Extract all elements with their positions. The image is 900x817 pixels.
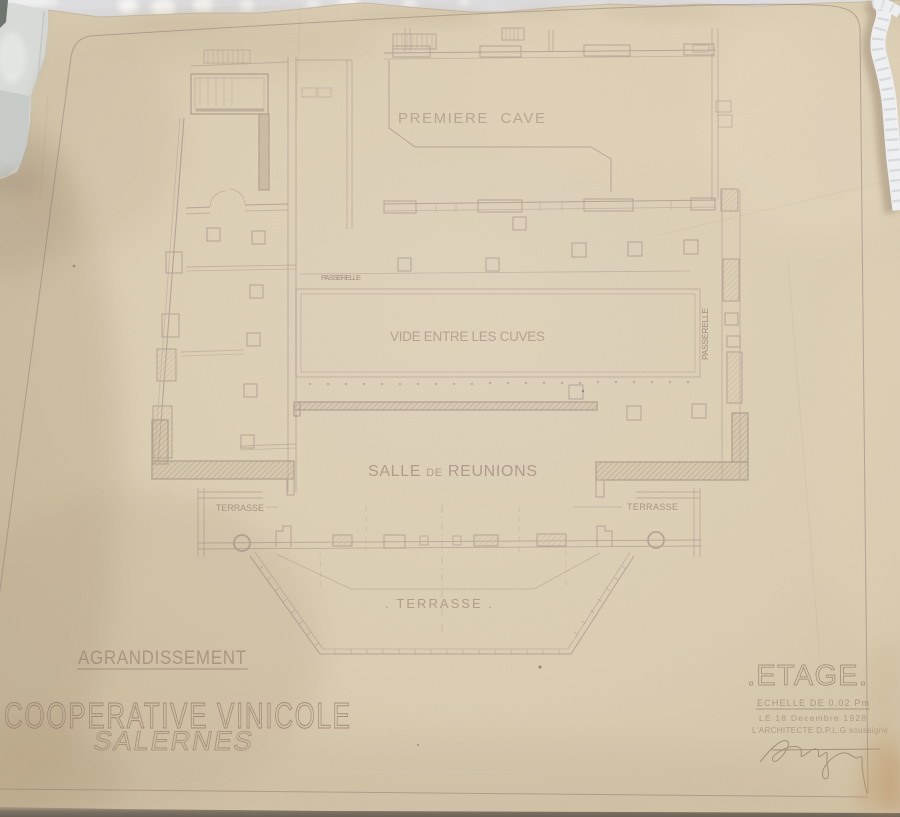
svg-text:VIDE ENTRE LES CUVES: VIDE ENTRE LES CUVES [390, 329, 545, 344]
svg-text:ECHELLE DE 0.02 Pm: ECHELLE DE 0.02 Pm [757, 698, 869, 708]
svg-text:L'ARCHITECTE D.P.L.G soussigné: L'ARCHITECTE D.P.L.G soussigné [752, 726, 889, 735]
svg-text:PREMIERE CAVE: PREMIERE CAVE [398, 110, 545, 127]
svg-text:PASSERELLE: PASSERELLE [700, 308, 710, 360]
svg-text:.ETAGE.: .ETAGE. [747, 660, 867, 692]
svg-text:SALLE DE REUNIONS: SALLE DE REUNIONS [368, 463, 537, 480]
svg-text:TERRASSE: TERRASSE [627, 502, 678, 512]
svg-text:LE 18 Decembre 1928: LE 18 Decembre 1928 [759, 713, 866, 723]
svg-text:PASSERELLE: PASSERELLE [321, 273, 361, 282]
svg-text:TERRASSE: TERRASSE [216, 503, 264, 513]
svg-text:AGRANDISSEMENT: AGRANDISSEMENT [78, 646, 246, 668]
